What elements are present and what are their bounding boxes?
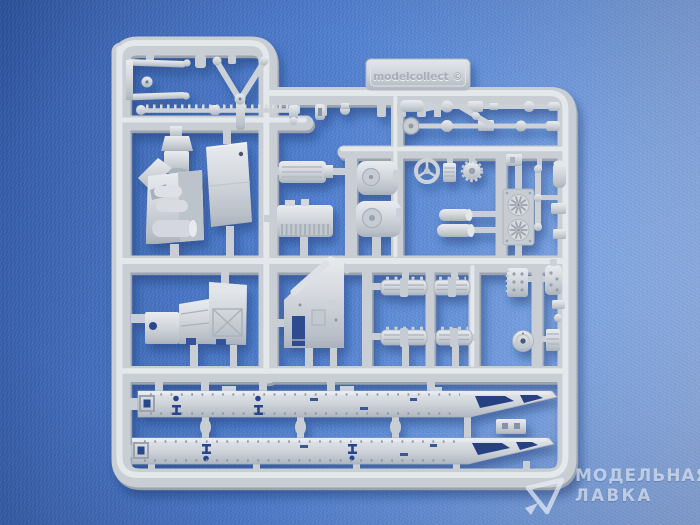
sprue-photo: modelcollect © modelcollect © xyxy=(0,0,700,525)
part-ribbed-block xyxy=(443,163,456,182)
part-steering-wheel xyxy=(416,160,438,182)
part-gearbox-upper xyxy=(357,161,401,195)
part-engine-block xyxy=(277,199,333,237)
part-ribbed-block-2 xyxy=(546,329,560,351)
part-gear-disc xyxy=(463,162,482,181)
part-thin-link xyxy=(534,165,542,231)
part-wheel-hub-plate xyxy=(503,189,534,245)
part-gearbox-lower xyxy=(356,201,403,237)
part-chassis-rail-upper xyxy=(138,386,557,417)
part-air-tanks xyxy=(437,209,475,237)
part-roof-panel xyxy=(206,142,252,227)
part-engine-radiator xyxy=(279,161,333,183)
part-wiper-linkage xyxy=(126,52,191,100)
part-small-bracket xyxy=(506,154,522,166)
brand-tab-text: modelcollect © xyxy=(373,71,463,83)
part-small-bracket-2 xyxy=(496,419,526,434)
part-disc xyxy=(513,331,534,352)
part-chassis-rail-lower xyxy=(132,438,554,464)
part-seat-assembly xyxy=(145,282,247,345)
